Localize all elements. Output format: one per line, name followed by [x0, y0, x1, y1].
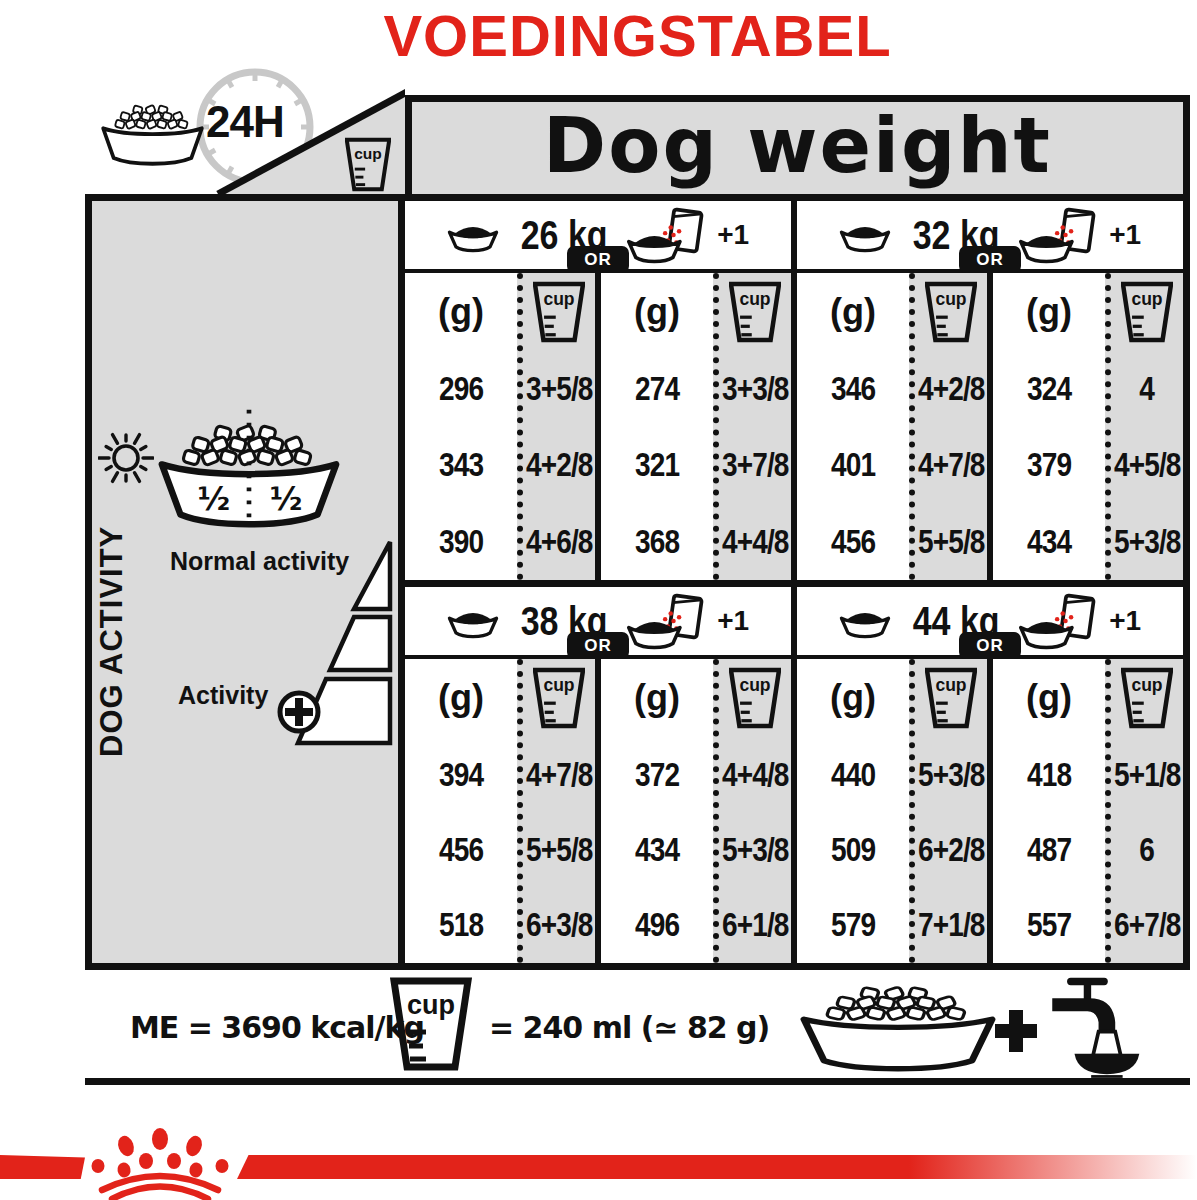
measuring-cup-icon: cup — [385, 976, 477, 1072]
cups-value: 5+3/8 — [915, 737, 987, 812]
cups-value: 5+5/8 — [523, 812, 595, 887]
grams-unit-label: (g) — [405, 273, 517, 351]
cups-subcolumn: cup 5+1/866+7/8 — [1105, 659, 1183, 963]
svg-text:cup: cup — [739, 290, 770, 310]
grams-value: 274 — [601, 351, 713, 427]
grams-value: 487 — [993, 812, 1105, 887]
grams-unit-label: (g) — [993, 659, 1105, 737]
measuring-cup-icon: cup — [345, 136, 391, 193]
cups-value: 3+7/8 — [719, 427, 791, 503]
plus-circle-icon — [275, 688, 323, 736]
grams-value: 440 — [797, 737, 909, 812]
grams-value: 296 — [405, 351, 517, 427]
water-tap-icon — [1043, 972, 1143, 1080]
grams-subcolumn: (g) 418487557 — [993, 659, 1105, 963]
svg-text:cup: cup — [354, 145, 382, 162]
cups-subcolumn: cup 3+5/84+2/84+6/8 — [517, 273, 595, 580]
dog-activity-panel: ½ ½ DOG ACTIVITY Normal activity Activit… — [85, 201, 405, 963]
red-brand-band — [0, 1155, 85, 1179]
grams-subcolumn: (g) 372434496 — [601, 659, 713, 963]
grams-unit-label: (g) — [797, 273, 909, 351]
grams-value: 557 — [993, 888, 1105, 963]
cups-subcolumn: cup 4+4/85+3/86+1/8 — [713, 659, 791, 963]
cups-value: 4+6/8 — [523, 504, 595, 580]
grams-subcolumn: (g) 440509579 — [797, 659, 909, 963]
svg-text:cup: cup — [1131, 290, 1162, 310]
grams-value: 346 — [797, 351, 909, 427]
daily-ration-label: 24H — [206, 97, 284, 147]
feeding-values-grid: 26 kg +1 OR (g) 296343390 cup — [405, 201, 1190, 963]
royal-canin-crown-logo — [86, 1128, 234, 1200]
grams-value: 434 — [993, 504, 1105, 580]
grams-subcolumn: (g) 274321368 — [601, 273, 713, 580]
grams-unit-label: (g) — [993, 273, 1105, 351]
cups-subcolumn: cup 5+3/86+2/87+1/8 — [909, 659, 987, 963]
plus-one-wet-label: +1 — [717, 219, 749, 251]
dog-weight-header: Dog weight — [405, 95, 1190, 194]
measuring-cup-icon: cup — [533, 666, 585, 730]
cups-subcolumn: cup 44+5/85+3/8 — [1105, 273, 1183, 580]
cups-value: 4 — [1111, 351, 1183, 427]
grams-value: 401 — [797, 427, 909, 503]
cup-unit-icon: cup — [915, 659, 987, 737]
plus-one-wet-label: +1 — [1109, 605, 1141, 637]
grams-value: 390 — [405, 504, 517, 580]
cup-unit-icon: cup — [915, 273, 987, 351]
moon-icon — [342, 425, 388, 483]
measuring-cup-icon: cup — [729, 666, 781, 730]
grams-value: 379 — [993, 427, 1105, 503]
svg-text:cup: cup — [935, 290, 966, 310]
quadrant-body: (g) 346401456 cup 4+2/84+7/85+5/8 (g) 32… — [797, 269, 1183, 580]
bowl-plus-wet-pouch-icon — [1019, 206, 1099, 264]
cups-value: 7+1/8 — [915, 888, 987, 963]
grams-value: 372 — [601, 737, 713, 812]
activity-plus-label: Activity — [178, 681, 268, 710]
svg-text:cup: cup — [739, 676, 770, 696]
or-badge: OR — [567, 632, 629, 659]
measuring-cup-icon: cup — [1121, 280, 1173, 344]
measuring-cup-icon: cup — [385, 976, 477, 1072]
kibble-plus-wet-column: (g) 418487557 cup 5+1/866+7/8 — [987, 659, 1183, 963]
svg-text:cup: cup — [543, 290, 574, 310]
kibble-plus-wet-column: (g) 324379434 cup 44+5/85+3/8 — [987, 273, 1183, 580]
kibble-bowl-icon — [798, 984, 998, 1076]
plus-circle-icon — [275, 688, 323, 736]
cups-subcolumn: cup 4+7/85+5/86+3/8 — [517, 659, 595, 963]
kibble-plus-wet-column: (g) 372434496 cup 4+4/85+3/86+1/8 — [595, 659, 791, 963]
grams-subcolumn: (g) 394456518 — [405, 659, 517, 963]
half-ration-right: ½ — [270, 481, 303, 517]
cups-value: 4+7/8 — [915, 427, 987, 503]
plus-one-wet-label: +1 — [717, 605, 749, 637]
cups-value: 5+3/8 — [1111, 504, 1183, 580]
quadrant-body: (g) 440509579 cup 5+3/86+2/87+1/8 (g) 41… — [797, 655, 1183, 963]
weight-quadrant: 38 kg +1 OR (g) 394456518 cup — [405, 587, 791, 963]
plus-one-wet-label: +1 — [1109, 219, 1141, 251]
water-tap-icon — [1043, 972, 1143, 1080]
grams-value: 418 — [993, 737, 1105, 812]
bowl-plus-wet-pouch-icon — [627, 206, 707, 264]
divider-line — [85, 963, 1190, 970]
kibble-bowl-icon — [100, 103, 205, 169]
cup-unit-icon: cup — [719, 273, 791, 351]
grams-value: 456 — [797, 504, 909, 580]
quadrant-header: 26 kg +1 OR — [405, 201, 791, 269]
measuring-cup-icon: cup — [925, 666, 977, 730]
cups-value: 4+2/8 — [523, 427, 595, 503]
cups-value: 3+3/8 — [719, 351, 791, 427]
footer-info-bar: ME = 3690 kcal/kg cup = 240 ml (≃ 82 g) — [85, 970, 1190, 1078]
metabolizable-energy-label: ME = 3690 kcal/kg — [130, 1010, 424, 1045]
svg-text:cup: cup — [407, 990, 455, 1020]
cups-value: 4+5/8 — [1111, 427, 1183, 503]
cups-value: 4+4/8 — [719, 504, 791, 580]
grams-value: 518 — [405, 888, 517, 963]
weight-quadrant: 32 kg +1 OR (g) 346401456 cup — [797, 201, 1183, 580]
grams-value: 456 — [405, 812, 517, 887]
half-half-bowl-icon: ½ ½ — [156, 406, 342, 533]
cups-value: 6 — [1111, 812, 1183, 887]
cups-subcolumn: cup 4+2/84+7/85+5/8 — [909, 273, 987, 580]
grams-subcolumn: (g) 324379434 — [993, 273, 1105, 580]
sun-icon — [98, 430, 154, 486]
grams-subcolumn: (g) 296343390 — [405, 273, 517, 580]
royal-canin-crown-logo — [86, 1128, 234, 1200]
grams-value: 368 — [601, 504, 713, 580]
grams-unit-label: (g) — [601, 273, 713, 351]
weight-quadrant: 44 kg +1 OR (g) 440509579 cup — [797, 587, 1183, 963]
kibble-bowl-icon — [798, 984, 998, 1076]
grams-value: 324 — [993, 351, 1105, 427]
red-brand-band — [237, 1155, 1197, 1179]
cups-value: 5+3/8 — [719, 812, 791, 887]
cups-value: 4+4/8 — [719, 737, 791, 812]
grams-unit-label: (g) — [797, 659, 909, 737]
or-badge: OR — [959, 246, 1021, 273]
svg-text:cup: cup — [935, 676, 966, 696]
svg-text:cup: cup — [1131, 676, 1162, 696]
kibble-only-column: (g) 296343390 cup 3+5/84+2/84+6/8 — [405, 273, 595, 580]
cups-value: 5+5/8 — [915, 504, 987, 580]
dry-food-bowl-icon — [839, 218, 891, 253]
kibble-only-column: (g) 394456518 cup 4+7/85+5/86+3/8 — [405, 659, 595, 963]
cups-value: 4+2/8 — [915, 351, 987, 427]
grams-unit-label: (g) — [405, 659, 517, 737]
divider-line — [85, 1078, 1190, 1085]
or-badge: OR — [567, 246, 629, 273]
cups-value: 3+5/8 — [523, 351, 595, 427]
cups-value: 5+1/8 — [1111, 737, 1183, 812]
grams-unit-label: (g) — [601, 659, 713, 737]
cups-value: 6+3/8 — [523, 888, 595, 963]
cup-unit-icon: cup — [523, 273, 595, 351]
grams-value: 509 — [797, 812, 909, 887]
measuring-cup-icon: cup — [925, 280, 977, 344]
grams-subcolumn: (g) 346401456 — [797, 273, 909, 580]
cups-value: 6+2/8 — [915, 812, 987, 887]
dry-food-bowl-icon — [839, 604, 891, 639]
quadrant-header: 44 kg +1 OR — [797, 587, 1183, 655]
dry-food-bowl-icon — [447, 604, 499, 639]
measuring-cup-icon: cup — [533, 280, 585, 344]
quadrant-header: 32 kg +1 OR — [797, 201, 1183, 269]
svg-text:cup: cup — [543, 676, 574, 696]
page-title: VOEDINGSTABEL — [85, 2, 1190, 69]
half-half-bowl-icon: ½ ½ — [156, 406, 342, 533]
cups-value: 4+7/8 — [523, 737, 595, 812]
measuring-cup-icon: cup — [345, 136, 391, 193]
grams-value: 394 — [405, 737, 517, 812]
plus-icon — [993, 1008, 1039, 1054]
cup-equivalence-label: = 240 ml (≃ 82 g) — [489, 1010, 769, 1045]
kibble-only-column: (g) 440509579 cup 5+3/86+2/87+1/8 — [797, 659, 987, 963]
kibble-plus-wet-column: (g) 274321368 cup 3+3/83+7/84+4/8 — [595, 273, 791, 580]
cup-unit-icon: cup — [1111, 273, 1183, 351]
grams-value: 343 — [405, 427, 517, 503]
dry-food-bowl-icon — [447, 218, 499, 253]
kibble-only-column: (g) 346401456 cup 4+2/84+7/85+5/8 — [797, 273, 987, 580]
grams-value: 434 — [601, 812, 713, 887]
weight-quadrant: 26 kg +1 OR (g) 296343390 cup — [405, 201, 791, 580]
dog-activity-label: DOG ACTIVITY — [94, 526, 130, 757]
grams-value: 496 — [601, 888, 713, 963]
half-ration-left: ½ — [197, 481, 230, 517]
sun-icon — [98, 430, 154, 486]
bowl-plus-wet-pouch-icon — [627, 592, 707, 650]
feeding-table-panel: VOEDINGSTABEL 24H cup Dog weight ½ ½ DOG… — [0, 0, 1197, 1200]
quadrant-body: (g) 394456518 cup 4+7/85+5/86+3/8 (g) 37… — [405, 655, 791, 963]
cups-subcolumn: cup 3+3/83+7/84+4/8 — [713, 273, 791, 580]
measuring-cup-icon: cup — [729, 280, 781, 344]
grams-value: 321 — [601, 427, 713, 503]
plus-icon — [993, 1008, 1039, 1054]
kibble-bowl-icon — [100, 103, 205, 169]
quadrant-body: (g) 296343390 cup 3+5/84+2/84+6/8 (g) 27… — [405, 269, 791, 580]
cup-unit-icon: cup — [719, 659, 791, 737]
cups-value: 6+7/8 — [1111, 888, 1183, 963]
or-badge: OR — [959, 632, 1021, 659]
cup-unit-icon: cup — [523, 659, 595, 737]
grams-value: 579 — [797, 888, 909, 963]
divider-line — [85, 194, 1190, 201]
moon-icon — [342, 425, 388, 483]
bowl-plus-wet-pouch-icon — [1019, 592, 1099, 650]
quadrant-header: 38 kg +1 OR — [405, 587, 791, 655]
measuring-cup-icon: cup — [1121, 666, 1173, 730]
cups-value: 6+1/8 — [719, 888, 791, 963]
dog-weight-title: Dog weight — [543, 101, 1052, 190]
cup-unit-icon: cup — [1111, 659, 1183, 737]
